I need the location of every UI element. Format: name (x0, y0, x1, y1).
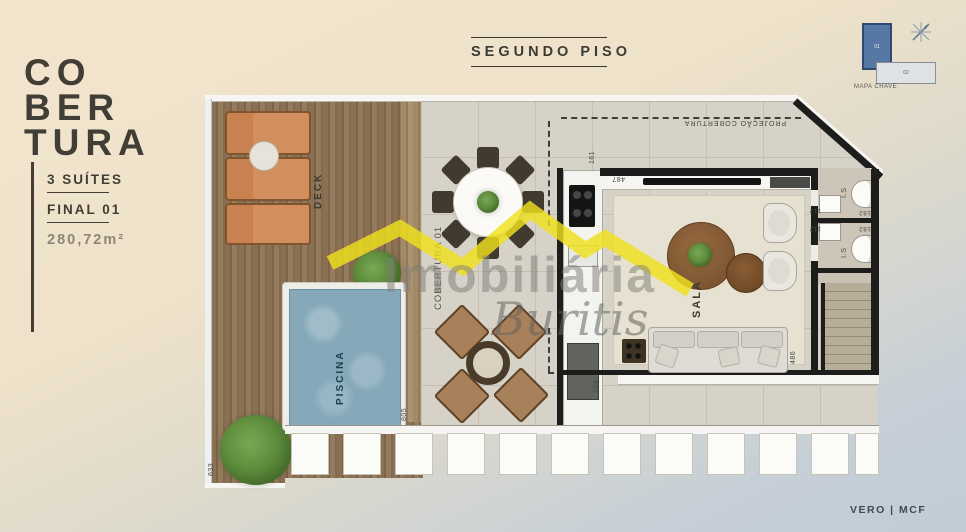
lounge-chair (225, 203, 311, 245)
deck-label: DECK (313, 155, 329, 227)
projection-corner-v (548, 328, 550, 372)
sala-right-wall (811, 168, 818, 375)
floor-title: SEGUNDO PISO (471, 38, 607, 66)
keyplan-unit1-label: 01 (874, 44, 880, 50)
balustrade-post (291, 433, 329, 475)
floor-plan: DECK PISCINA 805 633 PROJEÇÃO COBERTURA … (205, 95, 885, 491)
sala-top-wall (600, 168, 818, 176)
unit-specs: 3 SUÍTES FINAL 01 280,72m² (47, 172, 125, 248)
tv (643, 178, 761, 185)
header-bottom-line (471, 66, 607, 67)
cobertura-unit-label: COBERTURA 01 (433, 225, 444, 311)
dim-112-1: 112 (805, 207, 821, 214)
balustrade-post (655, 433, 693, 475)
bathroom-sink (819, 195, 841, 213)
large-plant (220, 415, 292, 485)
balustrade-post (499, 433, 537, 475)
footer-brand: VERO | MCF (850, 504, 950, 516)
is2-label: I.S (839, 241, 848, 265)
sala-label: SALA (691, 273, 706, 325)
cooktop (569, 185, 595, 227)
balustrade-post (855, 433, 879, 475)
armchair-cushion (768, 258, 790, 284)
piscina-label: PISCINA (335, 333, 351, 423)
right-outer-wall (871, 169, 879, 375)
dim-486: 486 (790, 347, 797, 367)
balustrade-post (811, 433, 849, 475)
staircase (821, 283, 875, 370)
armchair-cushion (768, 210, 790, 236)
spec-final: FINAL 01 (47, 202, 109, 223)
balustrade-post (603, 433, 641, 475)
keyplan-caption: MAPA CHAVE (854, 84, 897, 90)
balustrade-post (447, 433, 485, 475)
keyplan-unit-other: 02 (876, 62, 936, 84)
armchair (763, 251, 797, 291)
dining-chair (522, 191, 544, 213)
dining-chair (432, 191, 454, 213)
page-title: CO BER TURA (24, 55, 151, 160)
compass-icon (910, 21, 932, 43)
projection-line-v (548, 121, 550, 226)
keyplan: 01 02 MAPA CHAVE (848, 18, 952, 98)
balustrade-post (343, 433, 381, 475)
dining-chair (477, 147, 499, 169)
is1-label: I.S (839, 181, 848, 205)
title-line-2: BER (24, 90, 151, 125)
dim-182-2: 182 (853, 225, 871, 232)
pouf-table (466, 341, 510, 385)
spec-area: 280,72m² (47, 232, 125, 248)
sofa-pillow (717, 346, 740, 368)
balustrade-post (395, 433, 433, 475)
dim-112-2: 112 (805, 225, 821, 232)
balustrade-post (759, 433, 797, 475)
kitchen-sink (568, 245, 598, 267)
armchair (763, 203, 797, 243)
balustrade-post (707, 433, 745, 475)
keyplan-unit2-label: 02 (903, 70, 909, 76)
dim-805: 805 (401, 403, 408, 425)
sofa-pillow (757, 345, 781, 368)
dim-487: 487 (601, 175, 625, 182)
spec-suites: 3 SUÍTES (47, 172, 109, 193)
dining-centerpiece (477, 191, 499, 213)
sala-bottom-ledge (618, 375, 879, 385)
title-line-1: CO (24, 55, 151, 90)
sofa-cushion (697, 331, 739, 348)
title-line-3: TURA (24, 125, 151, 160)
coffee-table-plant (688, 243, 712, 267)
deck-side-table (249, 141, 279, 171)
dim-182-1: 182 (853, 209, 871, 216)
bathroom-sink (819, 223, 841, 241)
dim-161: 161 (589, 147, 596, 167)
sidebar-rule (31, 162, 34, 332)
console (770, 177, 810, 188)
floor-header: SEGUNDO PISO (471, 37, 607, 67)
projecao-label: PROJEÇÃO COBERTURA (665, 119, 805, 126)
sidebar: CO BER TURA (24, 55, 151, 160)
coffee-table-small (726, 253, 766, 293)
balustrade-post (551, 433, 589, 475)
dim-124: 124 (593, 377, 600, 395)
dim-633: 633 (208, 459, 215, 479)
sofa-side-table (622, 339, 646, 363)
page: { "sidebar": { "title_lines": ["CO", "BE… (0, 0, 966, 532)
sofa (648, 327, 788, 373)
dining-chair (477, 237, 499, 259)
